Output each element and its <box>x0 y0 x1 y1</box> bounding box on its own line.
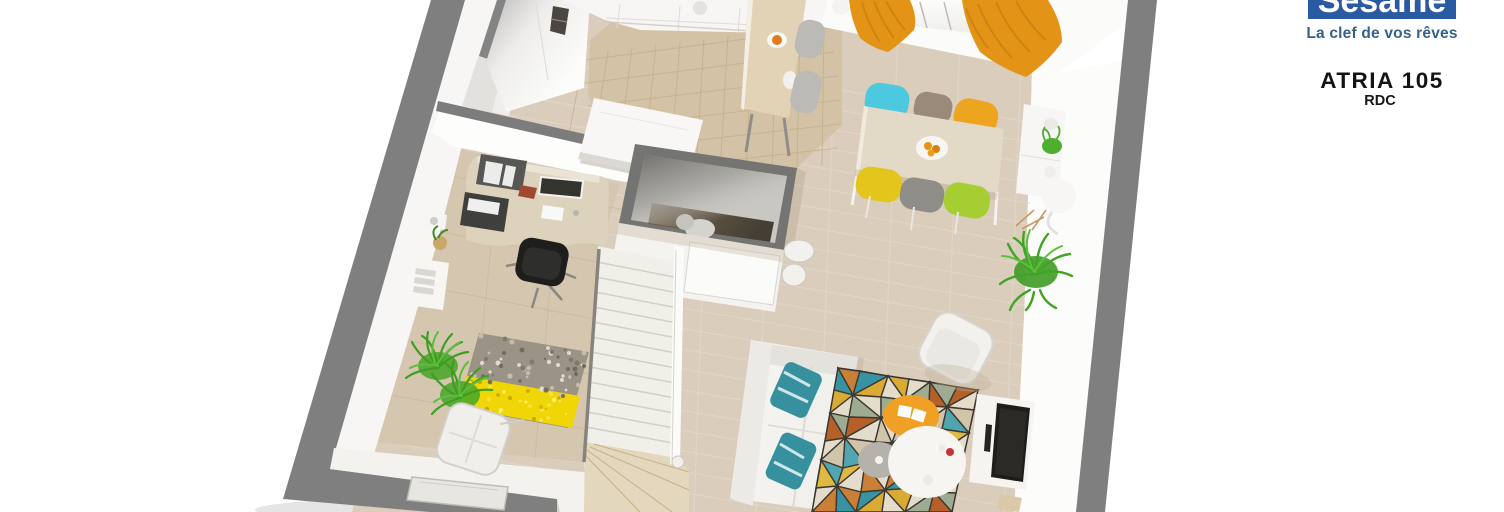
svg-text:Sésame: Sésame <box>1318 0 1447 20</box>
svg-text:ATRIA 105: ATRIA 105 <box>1320 68 1444 93</box>
svg-text:RDC: RDC <box>1364 93 1396 109</box>
svg-text:La clef de vos rêves: La clef de vos rêves <box>1306 25 1457 42</box>
